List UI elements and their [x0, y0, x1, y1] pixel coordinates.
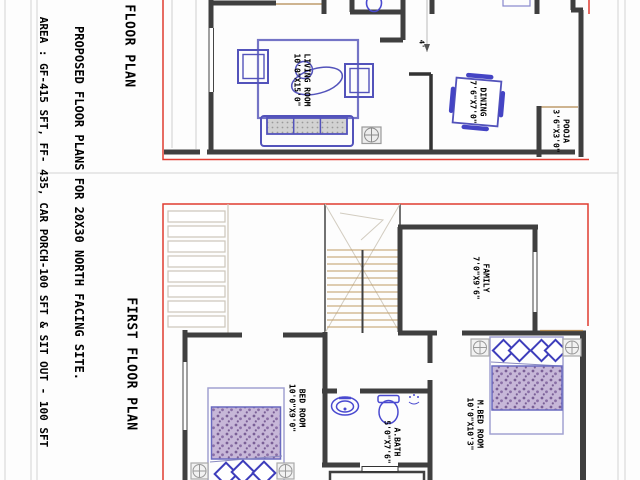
ff-bath-fixtures: [332, 394, 420, 424]
sheet-note-area: AREA : GF-415 SFT, FF- 435, CAR PORCH-10…: [36, 17, 50, 447]
room-label-family: FAMILY7'0"X9'6": [470, 256, 491, 299]
drawing-sheet: PROPOSED FLOOR PLANS FOR 20X30 NORTH FAC…: [0, 0, 640, 480]
ground-floor-title: FLOOR PLAN: [120, 4, 137, 87]
room-label-pooja: POOJA3'6"X3'0": [550, 109, 571, 152]
gf-inner-walls: [409, 74, 431, 150]
ff-bath-door: [362, 467, 398, 472]
room-label-bedroom: BED ROOM10'0"X9'0": [286, 384, 307, 432]
ff-lower-room-outline: [330, 472, 424, 480]
ground-floor-plan: [163, 0, 589, 160]
room-label-abath: A.BATH5'0"X7'6": [381, 420, 402, 463]
gf-guide-lines: [172, 0, 196, 149]
dimension-label-4ft: 4': [416, 40, 425, 48]
gf-kitchen-counter: [503, 0, 530, 6]
ff-staircase: [325, 204, 400, 333]
ff-terrace-slats: [168, 204, 228, 333]
room-label-dining: DINING7'6"X7'0": [467, 80, 488, 123]
room-label-living: LIVING ROOM10'0"X15'0": [291, 54, 312, 107]
sheet-note-proposed: PROPOSED FLOOR PLANS FOR 20X30 NORTH FAC…: [70, 26, 86, 380]
ff-bedroom-bed: [191, 388, 294, 480]
room-label-mbedroom: M.BED ROOM10'0"X10'3": [464, 398, 485, 451]
first-floor-plan: [163, 204, 588, 480]
first-floor-title: FIRST FLOOR PLAN: [122, 297, 139, 430]
ff-masterbed-bed: [471, 337, 581, 434]
floor-plan-drawing: [0, 0, 640, 480]
gf-window: [209, 28, 214, 92]
